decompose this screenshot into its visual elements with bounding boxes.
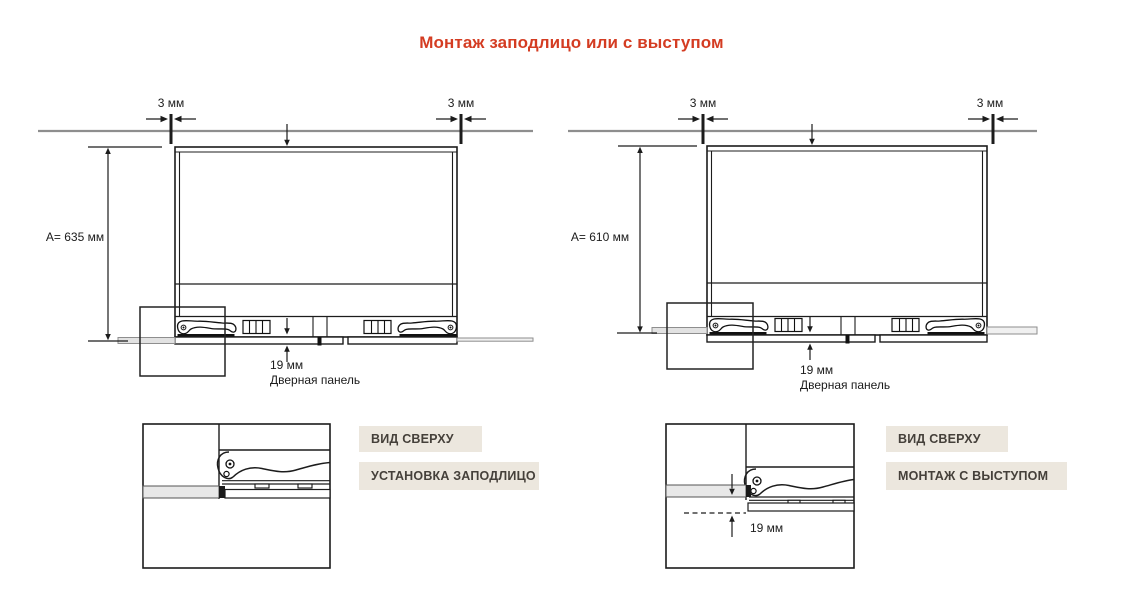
right-height-label: A= 610 мм [571,230,629,244]
detail-offset-label: 19 мм [750,521,783,535]
right-mode-tag: МОНТАЖ С ВЫСТУПОМ [886,462,1067,490]
right-caption-label: Дверная панель [800,378,890,392]
gap-dimension-left: 3 мм [146,96,196,144]
gap-dimension-right: 3 мм [968,96,1018,144]
cabinet-panel [175,147,457,337]
cabinet-panel [707,146,987,335]
door-panel-board [175,337,457,346]
left-mode-tag: УСТАНОВКА ЗАПОДЛИЦО [359,462,539,490]
page-title: Монтаж заподлицо или с выступом [18,33,1125,53]
thickness-dimension: 19 мм Дверная панель [800,344,890,393]
height-dimension: A= 635 мм [46,147,162,341]
right-gap-left-label: 3 мм [690,96,717,110]
right-thickness-label: 19 мм [800,363,833,377]
right-view-tag: ВИД СВЕРХУ [886,426,1008,452]
page: Монтаж заподлицо или с выступом 3 мм 3 м… [0,0,1125,608]
door-edge-strip [666,485,751,497]
thickness-dimension: 19 мм Дверная панель [270,346,360,388]
left-thickness-label: 19 мм [270,358,303,372]
left-view-tag: ВИД СВЕРХУ [359,426,482,452]
height-dimension: A= 610 мм [571,146,697,333]
left-gap-left-label: 3 мм [158,96,185,110]
door-panel-board [707,335,987,344]
left-main-diagram: 3 мм 3 мм 9 мм [25,85,540,400]
left-detail-view [138,420,334,572]
right-gap-right-label: 3 мм [977,96,1004,110]
left-height-label: A= 635 мм [46,230,104,244]
gap-dimension-right: 3 мм [436,96,486,144]
left-gap-right-label: 3 мм [448,96,475,110]
right-main-diagram: 3 мм 3 мм 3 мм [555,85,1070,400]
right-detail-view: 19 мм [661,420,857,572]
left-caption-label: Дверная панель [270,373,360,387]
gap-dimension-left: 3 мм [678,96,728,144]
